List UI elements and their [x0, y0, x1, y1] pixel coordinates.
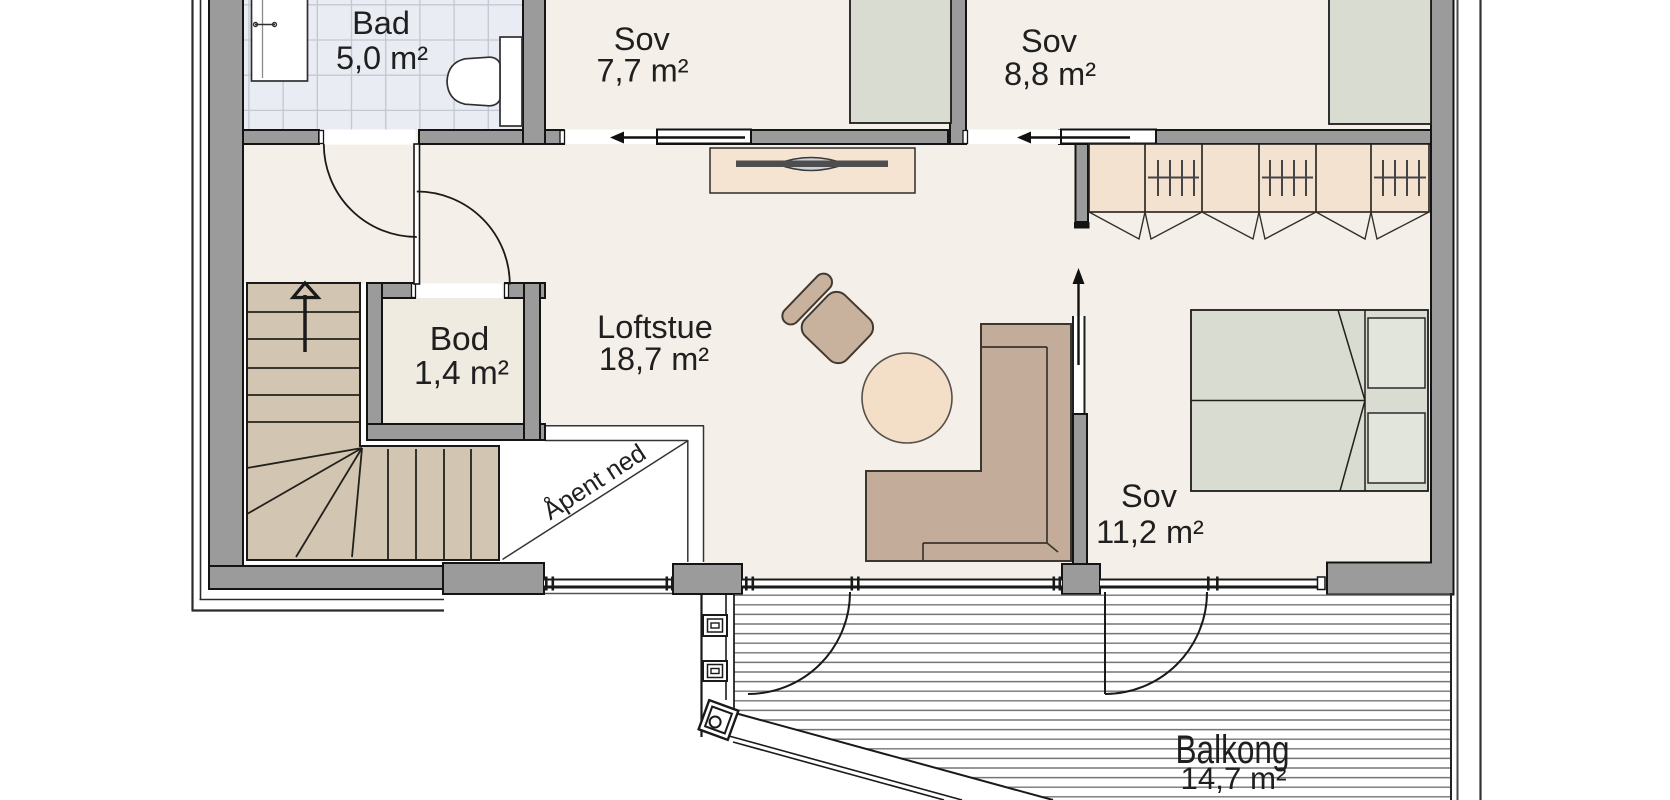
svg-text:1,4 m²: 1,4 m² — [414, 355, 509, 392]
svg-text:7,7 m²: 7,7 m² — [596, 53, 688, 89]
svg-text:Bod: Bod — [430, 321, 490, 358]
svg-text:5,0 m²: 5,0 m² — [336, 40, 428, 76]
svg-text:Sov: Sov — [1021, 23, 1078, 59]
svg-text:18,7 m²: 18,7 m² — [599, 341, 709, 377]
svg-text:Loftstue: Loftstue — [597, 309, 713, 345]
svg-text:11,2 m²: 11,2 m² — [1096, 514, 1204, 550]
svg-text:Bad: Bad — [352, 5, 410, 41]
svg-text:14,7 m²: 14,7 m² — [1181, 760, 1287, 796]
svg-text:Sov: Sov — [1121, 478, 1178, 514]
svg-text:8,8 m²: 8,8 m² — [1004, 56, 1096, 92]
